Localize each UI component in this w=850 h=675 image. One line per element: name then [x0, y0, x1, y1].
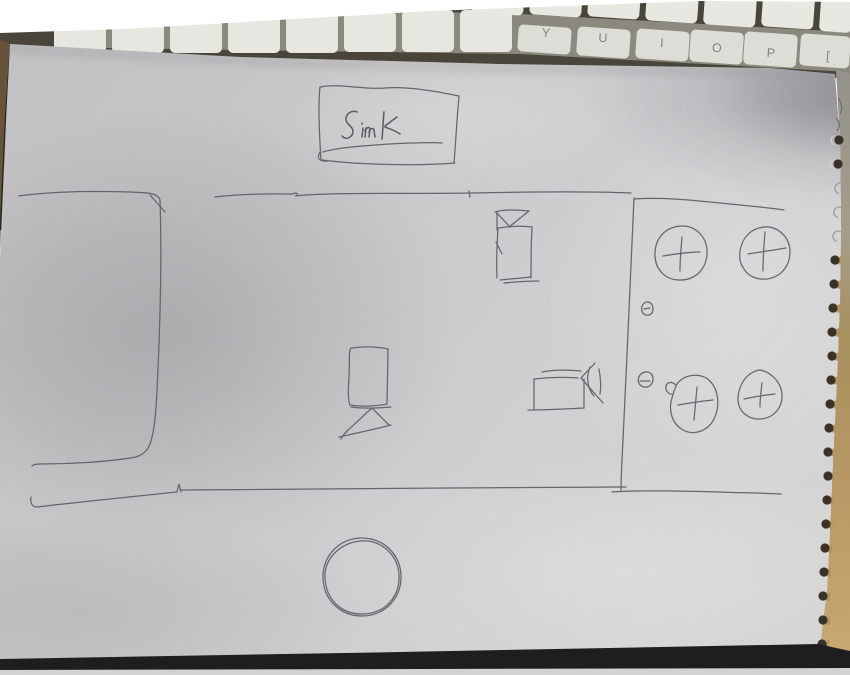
- svg-text:U: U: [598, 31, 608, 46]
- svg-text:Y: Y: [541, 26, 551, 41]
- svg-text:P: P: [766, 46, 775, 61]
- svg-text:O: O: [712, 41, 723, 56]
